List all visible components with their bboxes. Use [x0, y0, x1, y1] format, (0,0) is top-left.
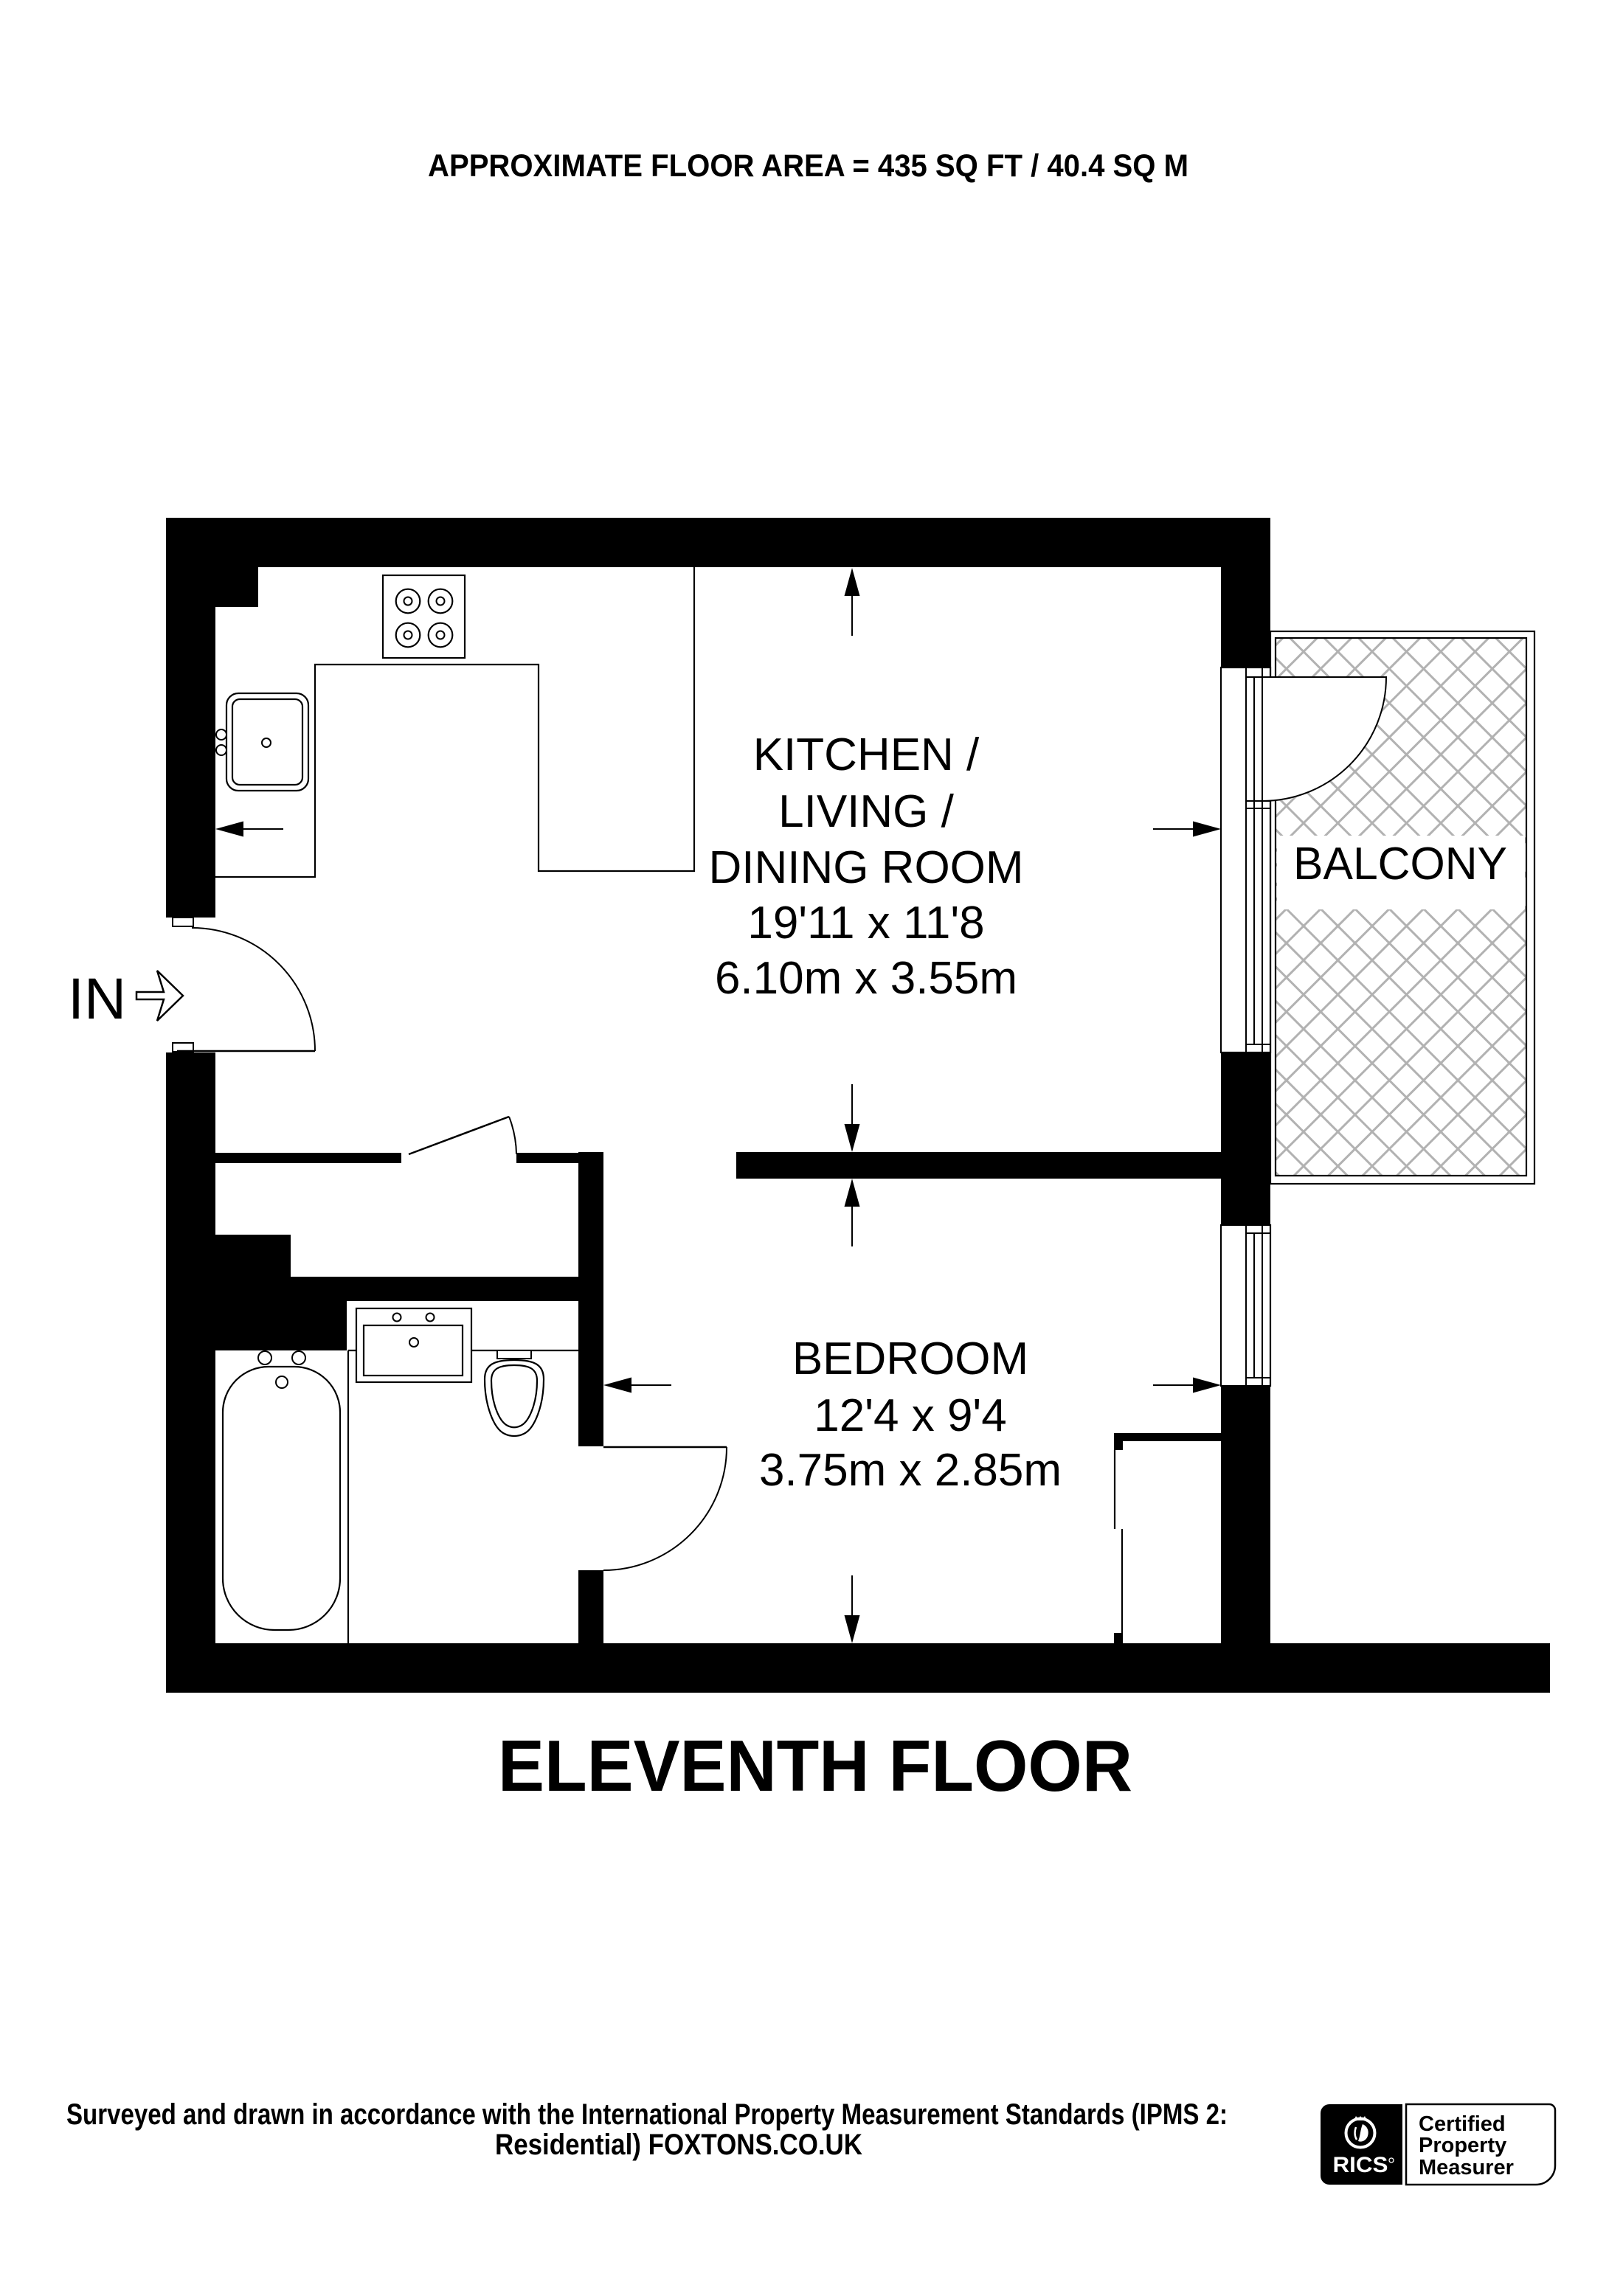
svg-text:19'11 x 11'8: 19'11 x 11'8	[747, 898, 984, 948]
svg-text:LIVING /: LIVING /	[778, 786, 955, 837]
svg-text:KITCHEN /: KITCHEN /	[753, 729, 980, 780]
svg-text:BALCONY: BALCONY	[1293, 839, 1507, 889]
svg-text:DINING ROOM: DINING ROOM	[708, 842, 1023, 893]
svg-text:APPROXIMATE FLOOR AREA = 435 S: APPROXIMATE FLOOR AREA = 435 SQ FT / 40.…	[428, 149, 1188, 184]
svg-text:6.10m x 3.55m: 6.10m x 3.55m	[715, 953, 1017, 1004]
svg-text:RICS: RICS	[1333, 2153, 1388, 2177]
svg-text:Measurer: Measurer	[1419, 2156, 1514, 2179]
svg-text:ELEVENTH FLOOR: ELEVENTH FLOOR	[498, 1725, 1132, 1806]
svg-text:Certified: Certified	[1419, 2112, 1506, 2136]
svg-text:Residential) FOXTONS.CO.UK: Residential) FOXTONS.CO.UK	[495, 2129, 862, 2161]
svg-text:12'4 x 9'4: 12'4 x 9'4	[814, 1390, 1007, 1441]
svg-text:BEDROOM: BEDROOM	[792, 1333, 1028, 1384]
svg-text:Surveyed and drawn in accordan: Surveyed and drawn in accordance with th…	[66, 2098, 1228, 2131]
svg-text:IN: IN	[68, 965, 126, 1031]
svg-text:3.75m x 2.85m: 3.75m x 2.85m	[759, 1445, 1062, 1496]
svg-text:Property: Property	[1419, 2134, 1506, 2157]
